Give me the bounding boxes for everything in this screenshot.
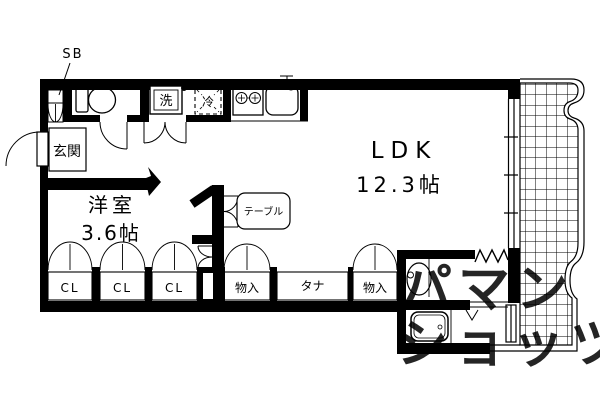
wall-washroom-top xyxy=(397,250,475,259)
wall-sink-post xyxy=(300,79,308,121)
wall-sb-post xyxy=(63,79,72,122)
wall-fridge-post xyxy=(223,79,231,121)
closet-label-1: CL xyxy=(60,281,79,295)
wall-top xyxy=(40,79,520,90)
closet-label-3: CL xyxy=(165,281,184,295)
wall-bottom xyxy=(40,301,403,312)
shelf-label: タナ xyxy=(300,279,324,293)
table: テーブル xyxy=(237,193,290,229)
ldk-size: 12.3帖 xyxy=(356,173,444,197)
wall-toilet-post xyxy=(140,79,149,122)
entry-door-leaf xyxy=(37,132,48,166)
watermark: パマン ショッツ xyxy=(396,260,600,375)
pillar-void xyxy=(203,273,213,299)
fridge-label: 冷 xyxy=(202,95,214,109)
entrance-label: 玄関 xyxy=(53,143,81,160)
wall-washroom-right xyxy=(508,248,520,303)
table-label: テーブル xyxy=(244,205,283,218)
wall-washroom-bottom xyxy=(397,343,490,354)
floorplan-image: パマン ショッツ xyxy=(0,0,600,400)
wall-cl-sep2 xyxy=(145,267,152,301)
wall-mid-horizontal xyxy=(192,235,224,244)
wall-sep-tana-monoire xyxy=(348,267,353,301)
wall-sep-monoire-tana xyxy=(270,267,277,301)
wall-corner-stub xyxy=(508,79,520,99)
storage-right-label: 物入 xyxy=(363,281,387,295)
ldk-name: LDK xyxy=(371,138,438,164)
western-room-size: 3.6帖 xyxy=(81,221,141,245)
storage-left-label: 物入 xyxy=(235,281,259,295)
wall-entrance xyxy=(40,178,148,190)
wall-left-upper xyxy=(40,79,48,132)
western-room-name: 洋室 xyxy=(88,193,136,217)
watermark-line1: パマン xyxy=(400,260,574,320)
shoe-box-label: SB xyxy=(62,47,83,62)
wall-washroom-left xyxy=(397,250,406,352)
wall-mid-bar1 xyxy=(212,185,224,235)
wall-toilet-bottom xyxy=(72,115,100,122)
closet-label-2: CL xyxy=(113,281,132,295)
wall-cl-sep1 xyxy=(92,267,100,301)
washer-label: 洗 xyxy=(159,94,172,109)
wall-bath-divider xyxy=(406,300,470,310)
